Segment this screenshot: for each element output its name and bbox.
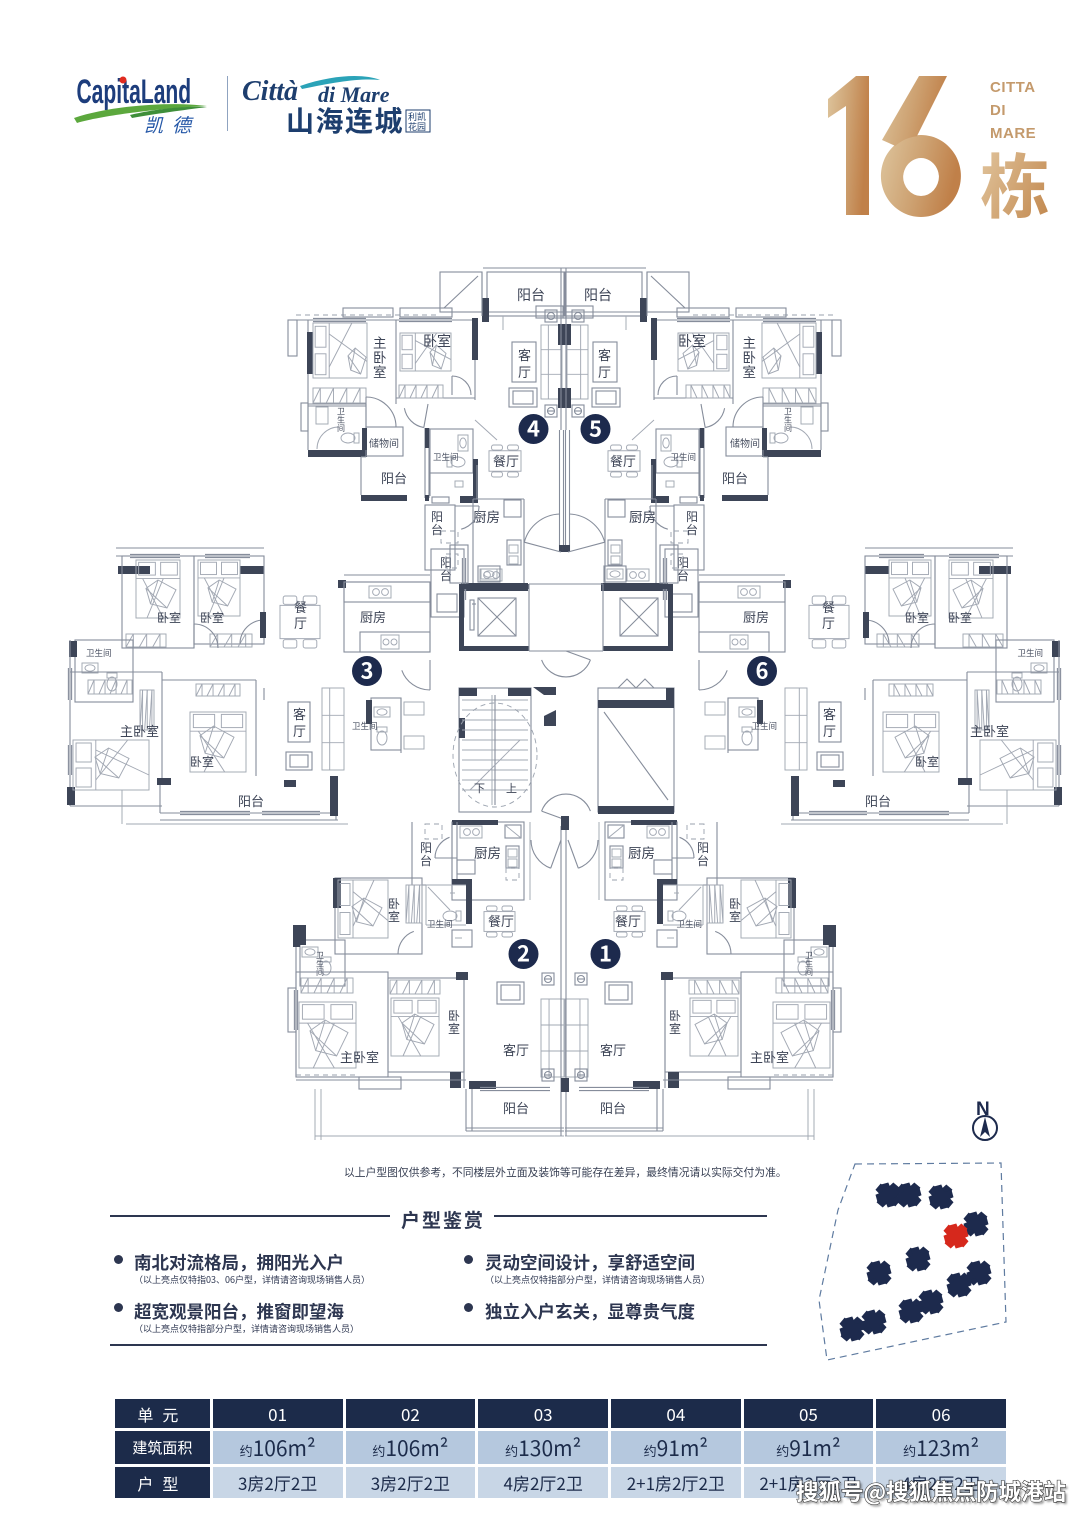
svg-text:室: 室	[388, 908, 400, 925]
svg-text:阳台: 阳台	[722, 468, 748, 487]
svg-text:卧室: 卧室	[905, 609, 929, 626]
svg-text:卫生间: 卫生间	[427, 918, 453, 930]
svg-text:卧室: 卧室	[190, 753, 214, 770]
svg-text:卧室: 卧室	[948, 609, 972, 626]
svg-text:餐厅: 餐厅	[610, 451, 636, 470]
svg-text:厅: 厅	[518, 362, 531, 381]
svg-text:台: 台	[697, 852, 709, 869]
svg-text:主卧室: 主卧室	[750, 1047, 789, 1066]
svg-text:主卧室: 主卧室	[340, 1047, 379, 1066]
svg-text:间: 间	[337, 423, 345, 434]
svg-text:厅: 厅	[822, 613, 835, 632]
svg-text:卧室: 卧室	[678, 331, 706, 351]
svg-text:客厅: 客厅	[503, 1040, 529, 1059]
svg-text:台: 台	[677, 567, 689, 584]
svg-text:卧室: 卧室	[157, 609, 181, 626]
svg-text:室: 室	[373, 361, 387, 381]
svg-text:厅: 厅	[823, 721, 836, 740]
svg-text:3: 3	[361, 654, 374, 686]
svg-text:卫生间: 卫生间	[671, 451, 697, 463]
svg-text:2: 2	[517, 937, 530, 969]
svg-text:阳台: 阳台	[865, 791, 891, 810]
svg-text:卫生间: 卫生间	[352, 720, 378, 732]
svg-text:室: 室	[669, 1020, 681, 1037]
svg-text:室: 室	[729, 908, 741, 925]
svg-text:5: 5	[589, 412, 602, 444]
svg-text:主卧室: 主卧室	[970, 721, 1009, 740]
svg-text:厅: 厅	[294, 613, 307, 632]
svg-text:卧室: 卧室	[915, 753, 939, 770]
svg-text:室: 室	[743, 361, 757, 381]
svg-text:餐厅: 餐厅	[488, 911, 514, 930]
svg-text:厅: 厅	[293, 721, 306, 740]
svg-text:阳台: 阳台	[584, 285, 612, 305]
svg-text:6: 6	[756, 654, 769, 686]
svg-text:阳台: 阳台	[517, 285, 545, 305]
svg-text:阳台: 阳台	[503, 1098, 529, 1117]
svg-text:厨房: 厨房	[474, 842, 501, 862]
svg-text:台: 台	[420, 852, 432, 869]
svg-text:间: 间	[316, 967, 324, 978]
svg-text:储物间: 储物间	[730, 435, 760, 450]
svg-text:1: 1	[599, 937, 612, 969]
svg-text:储物间: 储物间	[369, 435, 399, 450]
svg-text:阳台: 阳台	[381, 468, 407, 487]
svg-text:卫生间: 卫生间	[86, 647, 112, 659]
svg-text:室: 室	[448, 1020, 460, 1037]
svg-text:阳台: 阳台	[238, 791, 264, 810]
svg-text:餐厅: 餐厅	[493, 451, 519, 470]
svg-text:厨房: 厨房	[743, 607, 769, 626]
svg-text:台: 台	[431, 521, 443, 538]
svg-text:卧室: 卧室	[423, 331, 451, 351]
svg-text:卫生间: 卫生间	[677, 918, 703, 930]
svg-text:间: 间	[805, 967, 813, 978]
svg-text:餐厅: 餐厅	[615, 911, 641, 930]
svg-text:厨房: 厨房	[360, 607, 386, 626]
svg-text:下: 下	[474, 780, 485, 796]
svg-text:阳台: 阳台	[600, 1098, 626, 1117]
svg-text:厅: 厅	[598, 362, 611, 381]
svg-text:主卧室: 主卧室	[120, 721, 159, 740]
svg-text:卫生间: 卫生间	[1018, 647, 1044, 659]
svg-text:客厅: 客厅	[600, 1040, 626, 1059]
svg-text:间: 间	[784, 423, 792, 434]
svg-text:厨房: 厨房	[629, 506, 656, 526]
svg-text:厨房: 厨房	[628, 842, 655, 862]
svg-text:卫生间: 卫生间	[752, 720, 778, 732]
svg-text:4: 4	[527, 412, 540, 444]
svg-text:台: 台	[686, 521, 698, 538]
svg-text:上: 上	[506, 780, 517, 796]
svg-text:卫生间: 卫生间	[433, 451, 459, 463]
svg-text:卧室: 卧室	[200, 609, 224, 626]
